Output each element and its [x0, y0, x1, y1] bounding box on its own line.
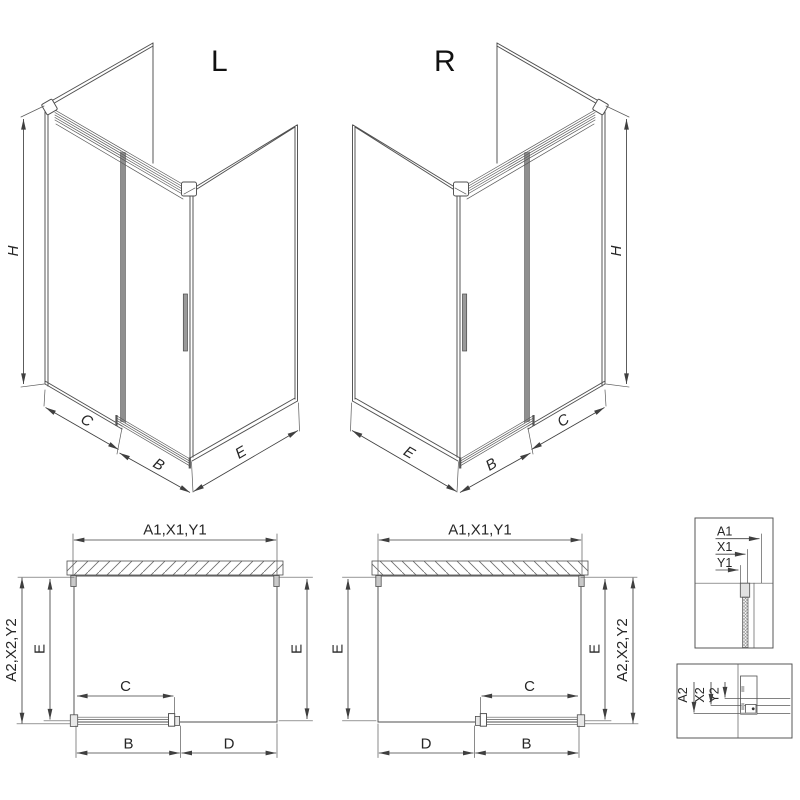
plan-right-dim-e-right: E: [587, 644, 604, 654]
variant-label-right: R: [434, 45, 456, 78]
plan-left-dim-b: B: [123, 736, 133, 753]
detail-box-floor-rail: A2 X2 Y2: [676, 664, 792, 738]
plan-left-dim-e-left: E: [32, 644, 49, 654]
glass-panel-section: [743, 597, 748, 647]
dim-label-h-right: H: [608, 245, 625, 256]
plan-right-dim-top: A1,X1,Y1: [448, 522, 511, 539]
detail-dim-x2: X2: [693, 687, 707, 702]
detail-dim-y2: Y2: [708, 687, 722, 702]
plan-view-left: A1,X1,Y1 A2,X2,Y2 E E C B D: [3, 522, 313, 758]
plan-left-dim-top: A1,X1,Y1: [143, 522, 206, 539]
plan-left-dim-e-right: E: [289, 644, 306, 654]
technical-drawing-page: L H C B E R H C B E A1,X1,Y1 A2,X2,Y2 E …: [0, 0, 800, 800]
detail-dim-a2: A2: [676, 687, 690, 702]
wall-profile-cap: [740, 583, 749, 597]
iso-view-left: L H C B E: [5, 43, 300, 493]
plan-left-dim-c: C: [120, 678, 131, 695]
plan-right-dim-b: B: [521, 736, 531, 753]
iso-left-structure: [21, 43, 300, 493]
plan-right-dim-e-left: E: [330, 644, 347, 654]
detail-dim-y1: Y1: [717, 556, 732, 570]
plan-right-dim-side-outer: A2,X2,Y2: [614, 618, 631, 681]
shower-enclosure-drawing: L H C B E R H C B E A1,X1,Y1 A2,X2,Y2 E …: [0, 0, 800, 800]
detail-box-wall-profile: A1 X1 Y1: [695, 518, 773, 648]
dim-label-h-left: H: [5, 245, 22, 256]
plan-view-right: A1,X1,Y1 A2,X2,Y2 E E C B D: [330, 522, 639, 758]
iso-right-structure: [351, 43, 630, 493]
plan-left-dim-side-outer: A2,X2,Y2: [3, 618, 20, 681]
detail-dim-a1: A1: [717, 525, 732, 539]
detail-dim-x1: X1: [717, 540, 732, 554]
iso-view-right: R H C B E: [351, 43, 630, 493]
plan-left-structure: [17, 534, 313, 758]
plan-right-dim-c: C: [524, 678, 535, 695]
variant-label-left: L: [211, 45, 228, 78]
plan-left-dim-d: D: [224, 736, 235, 753]
plan-right-dim-d: D: [421, 736, 432, 753]
